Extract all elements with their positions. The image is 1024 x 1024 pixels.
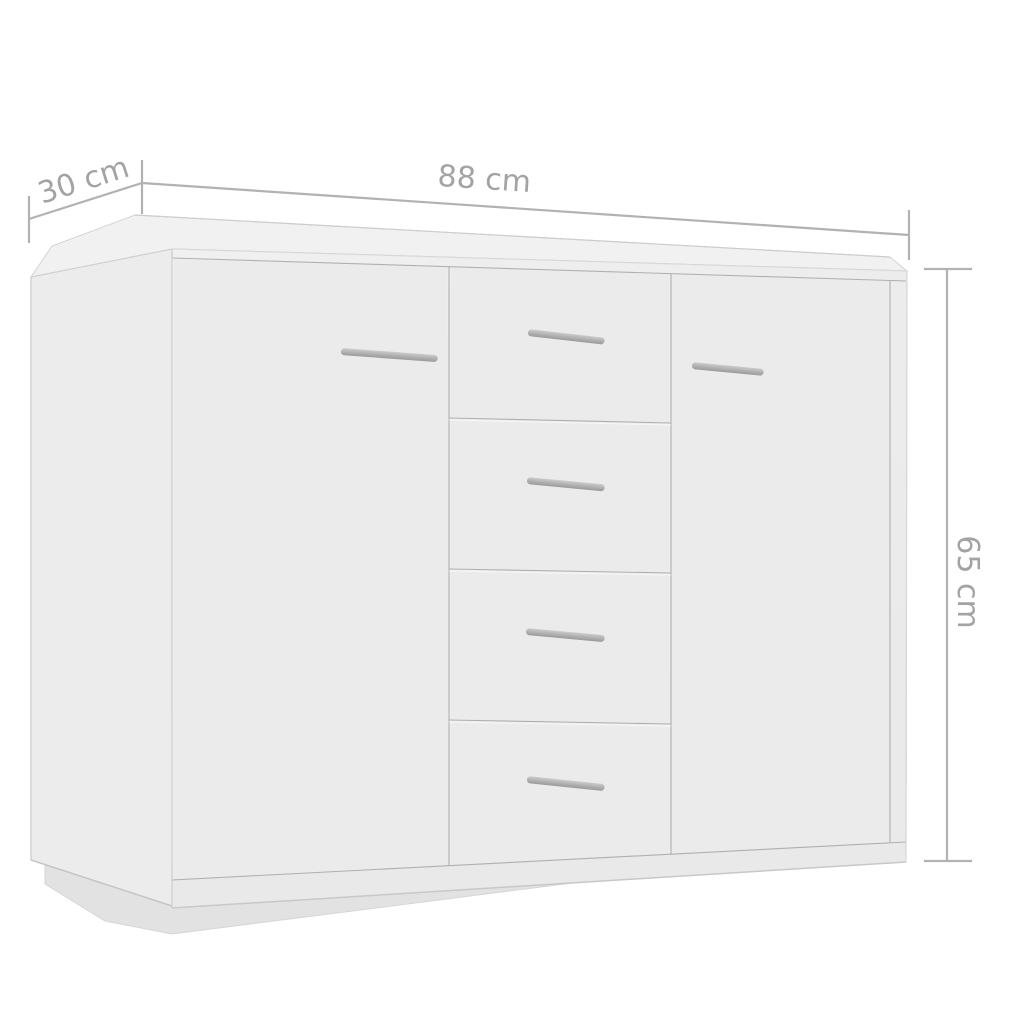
left-door: [174, 259, 448, 880]
side-panel: [31, 249, 172, 906]
drawer-4: [451, 722, 670, 866]
product-image-canvas: 30 cm 88 cm 65 cm: [0, 0, 1024, 1024]
drawer-3: [451, 571, 670, 724]
cabinet: [31, 215, 907, 934]
drawer-1: [451, 268, 670, 423]
drawer-2: [451, 420, 670, 573]
right-door: [673, 275, 889, 854]
width-dimension-label: 88 cm: [437, 159, 533, 200]
height-dimension-label: 65 cm: [950, 535, 985, 628]
sideboard-dimension-diagram: 30 cm 88 cm 65 cm: [0, 0, 1024, 1024]
